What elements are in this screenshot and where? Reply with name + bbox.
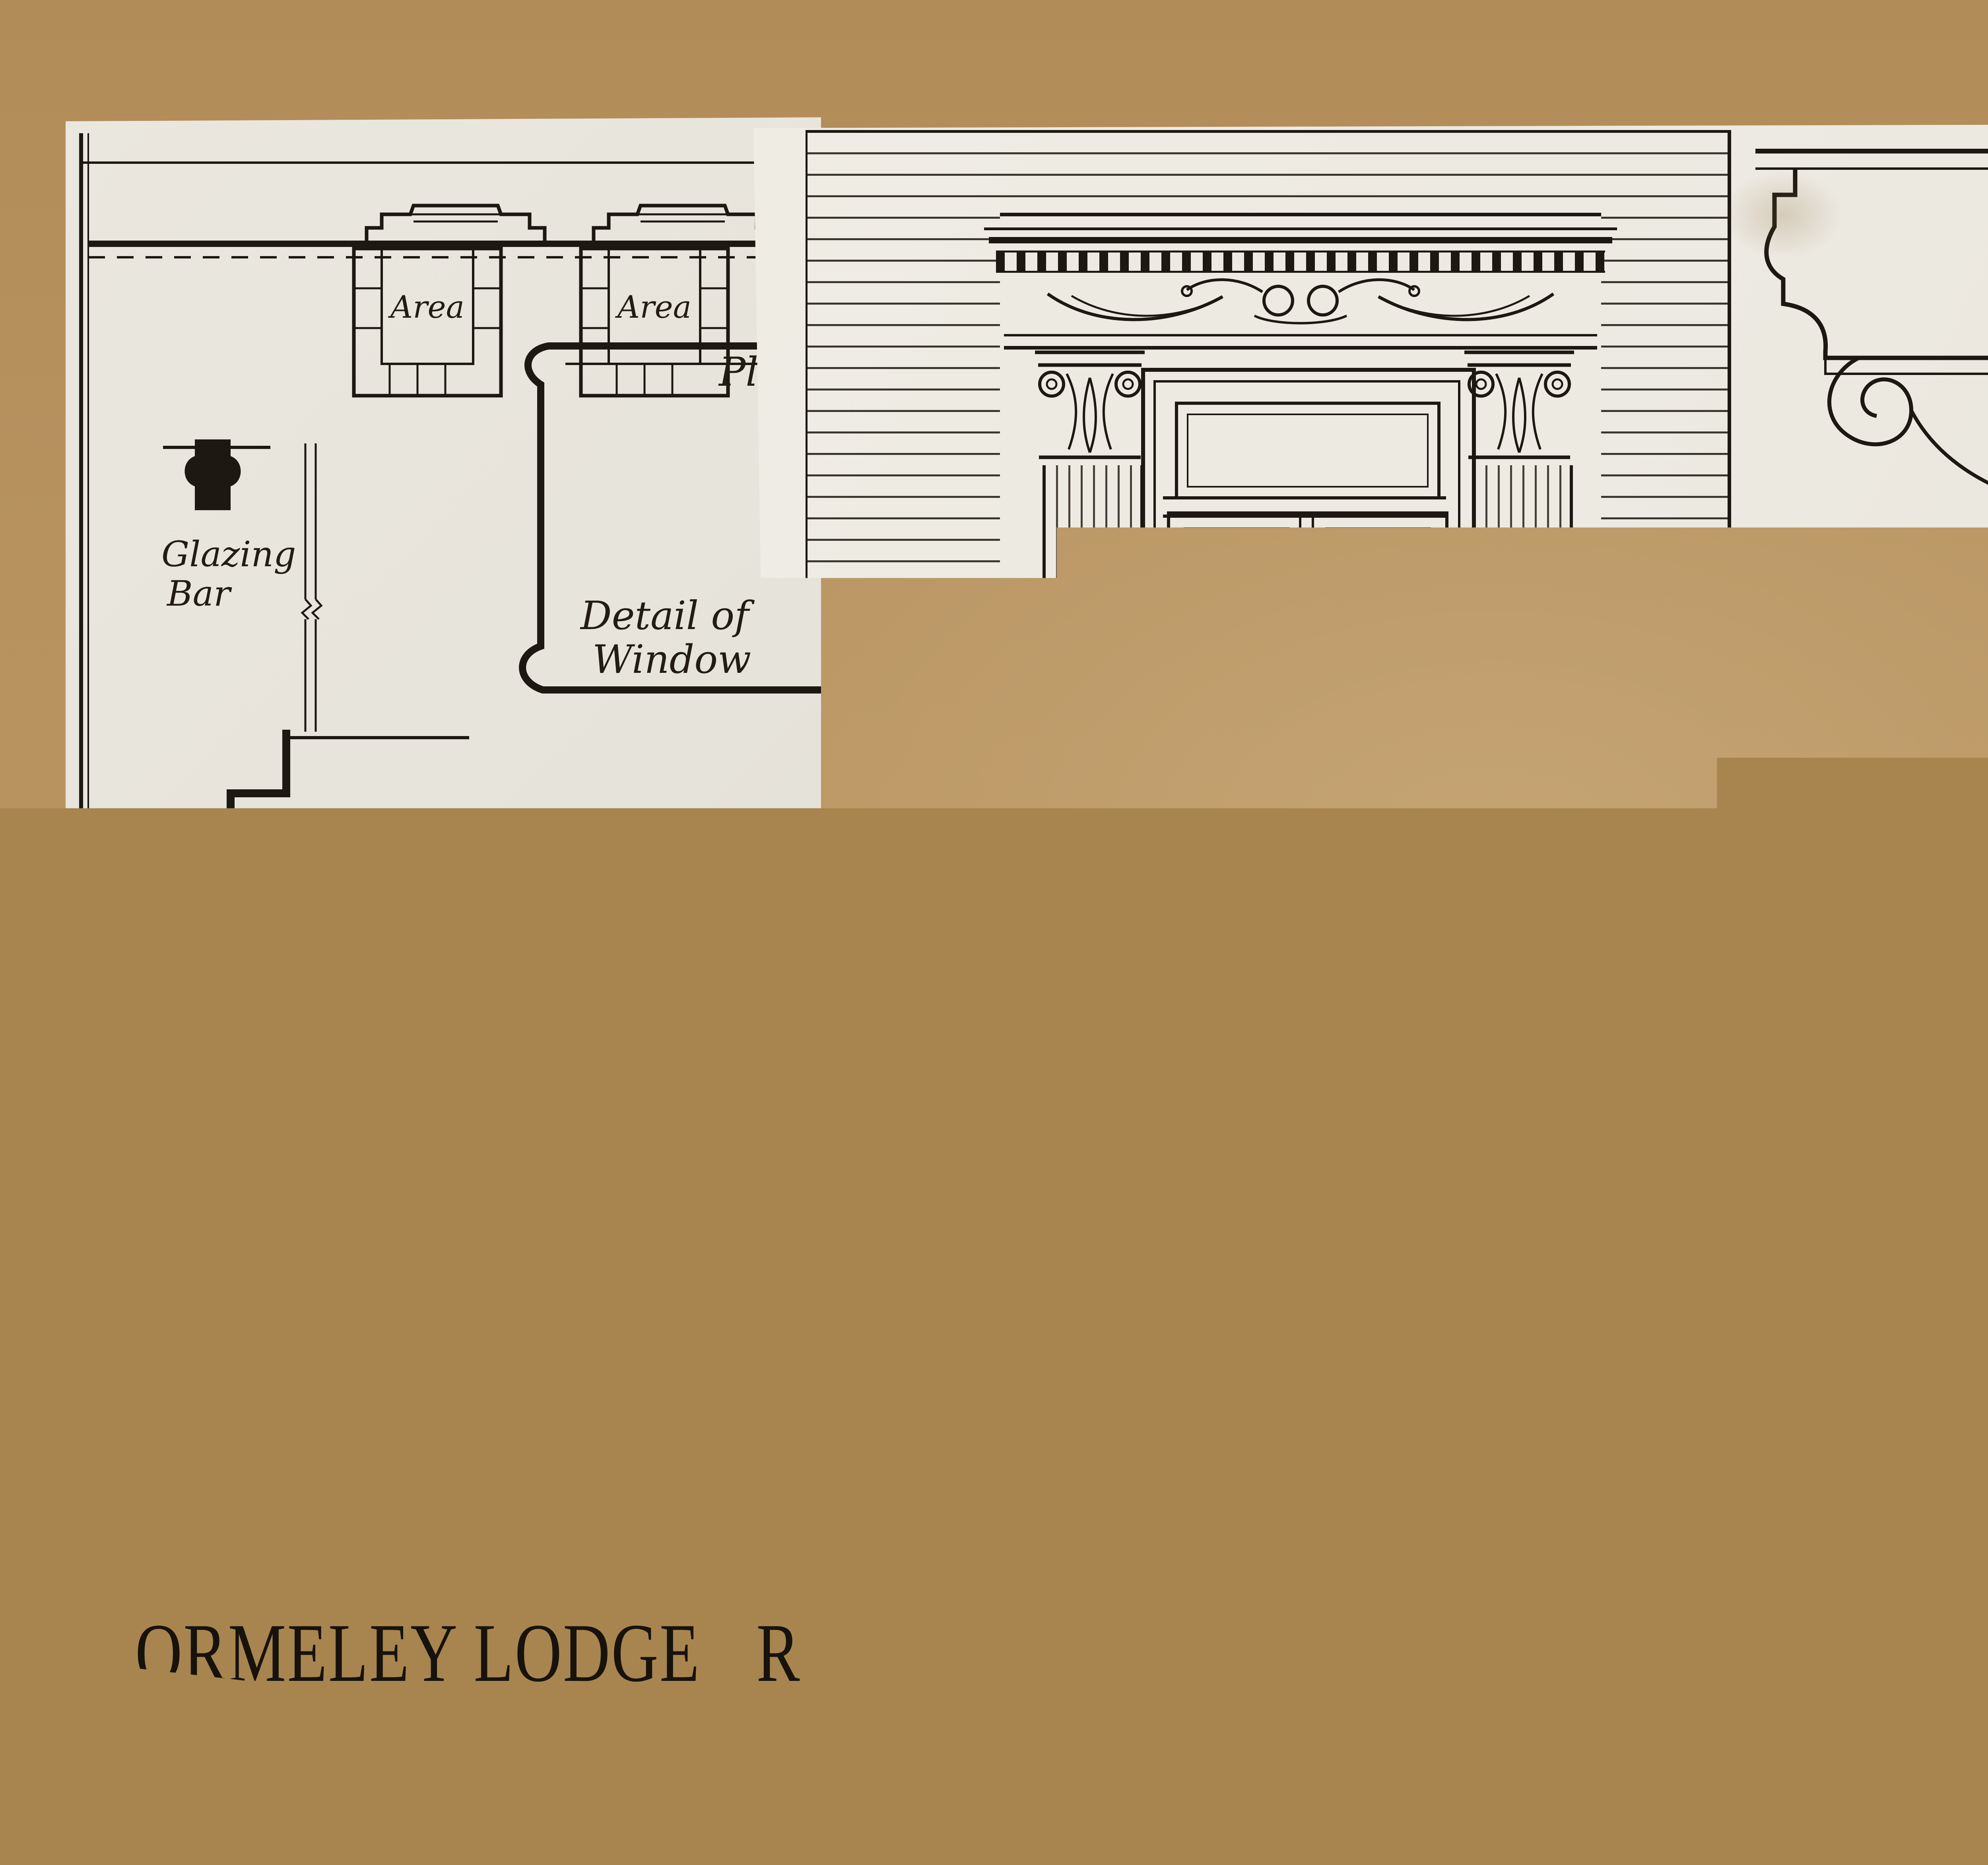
nosing-to-steps-label: Nosing to Steps xyxy=(1938,855,1988,940)
scale-tick-label: 2 xyxy=(1745,1389,1763,1421)
dimension-vertical-label: 6⅝ xyxy=(1017,1369,1049,1415)
plan-bottom-label: Plan xyxy=(524,1570,606,1611)
scale-tick-label: 0 xyxy=(715,1053,733,1085)
label-line: Cornice xyxy=(1879,676,1988,719)
scale-tick-mark xyxy=(1522,1415,1524,1433)
label-line: Brick String xyxy=(248,956,477,998)
label-line: to Door xyxy=(1863,719,1988,762)
right-sheet-title: ORMELEY LODGE xyxy=(832,1647,1455,1743)
scale-tick-label: Ins xyxy=(1985,1383,1988,1416)
scale-tick-label: 1 xyxy=(1527,1392,1545,1424)
pencil-scribble xyxy=(1360,1746,1686,1865)
scale-tick-label: In xyxy=(600,1055,629,1088)
label-line: Floor Level xyxy=(248,1039,477,1080)
entrance-door-subtitle: Entrance Door xyxy=(1493,1649,1872,1706)
original-ground-line-label: Original Ground Line xyxy=(1803,1278,1988,1311)
drawing-board: 3-C xyxy=(0,0,1988,1855)
door-panel-inner xyxy=(1337,539,1419,624)
area-cap xyxy=(594,206,772,244)
base-band-detail xyxy=(95,1465,231,1513)
door-panel xyxy=(1325,527,1431,635)
detail-line: Detail of xyxy=(580,594,751,638)
scale-tick-mark xyxy=(1971,1415,1972,1433)
scale-tick-label: Ins xyxy=(1863,1671,1907,1704)
pilaster-capital-right xyxy=(1464,346,1574,465)
scale-tick-mark xyxy=(1824,1415,1826,1433)
scale-tick-mark xyxy=(1675,1415,1677,1433)
pilaster-capital-left xyxy=(1035,346,1145,465)
glazing-bar-line: Bar xyxy=(167,574,296,614)
right-sheet: Cornice to Door Nosing to Steps Section … xyxy=(753,123,1988,1766)
ironwork-railing-left xyxy=(945,743,1135,1206)
elevation-label: Elevation xyxy=(1284,1302,1508,1355)
left-sheet-title: ORMELEY LODGE R xyxy=(135,1605,701,1701)
area-label: Area xyxy=(587,290,722,325)
scale-tick-label: 4 xyxy=(1891,1389,1909,1421)
cornice-fascia xyxy=(989,237,1612,243)
door-panel-inner xyxy=(1195,539,1278,624)
architrave-label: Architrave xyxy=(1176,1440,1372,1480)
scale-tick-mark xyxy=(1895,1415,1897,1433)
scale-tick-label: 1 xyxy=(642,1053,660,1085)
title-text: ORMELEY LODGE xyxy=(135,1607,701,1699)
frieze-carving xyxy=(1000,272,1601,332)
scale-tick-label: ½ xyxy=(678,1053,705,1085)
door-panel xyxy=(1184,527,1289,635)
scale-tick-label: 3 xyxy=(1821,1389,1839,1421)
entablature xyxy=(1000,213,1601,352)
label-line: Nosing to xyxy=(1938,855,1988,898)
dentil-course xyxy=(996,251,1605,273)
scale-tick-mark xyxy=(1749,1415,1751,1433)
transom-panel-inner xyxy=(1187,414,1429,488)
cornice-line xyxy=(984,227,1617,230)
transom-panel xyxy=(1175,402,1441,499)
rain-pipe-line xyxy=(1592,803,1595,1185)
scale-tick-label: In xyxy=(1488,1389,1517,1421)
area-label: Area xyxy=(360,290,495,325)
main-scale-bar xyxy=(1918,1699,1988,1702)
scale-tick-mark xyxy=(1562,1416,1564,1432)
label-line: at First xyxy=(272,998,477,1039)
ironwork-railings xyxy=(889,732,1724,1221)
details-scale-bar xyxy=(1522,1423,1972,1425)
glazing-bar-line: Glazing xyxy=(161,535,296,574)
scale-tick-mark xyxy=(1960,1690,1962,1711)
scale-tick-mark xyxy=(1918,1690,1920,1711)
detail-of-window-label: Detail of Window xyxy=(580,594,751,682)
left-sheet: Area Area Plan Glazing Bar Detail of Win… xyxy=(64,117,821,1692)
label-line: Steps xyxy=(1938,898,1988,941)
scale-tick-mark xyxy=(1598,1415,1600,1433)
pilaster-label: Pilaster xyxy=(1795,1505,1938,1546)
glazing-bar-label: Glazing Bar xyxy=(161,535,296,613)
dimension-horizontal-label: 3⅝ xyxy=(1059,1475,1105,1507)
area-cap xyxy=(367,206,545,244)
architrave-line xyxy=(1004,334,1597,336)
detail-line: Window xyxy=(592,638,751,682)
scale-tick-label: ½ xyxy=(1561,1392,1588,1424)
brick-string-first-label: Brick String at First Floor Level xyxy=(248,956,477,1080)
cornice-to-door-label: Cornice to Door xyxy=(1863,676,1988,762)
scale-tick-mark xyxy=(1939,1693,1941,1708)
